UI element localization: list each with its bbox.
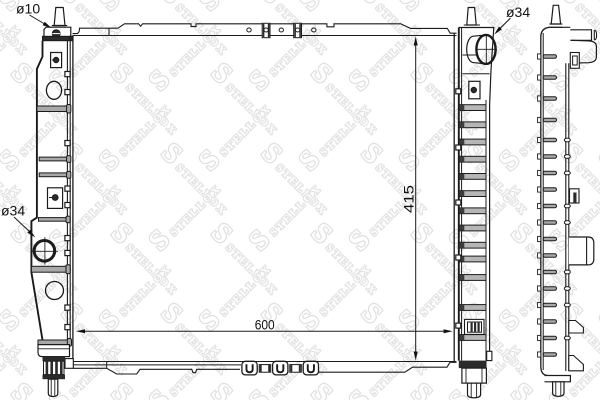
svg-text:ø34: ø34 <box>506 4 530 20</box>
svg-text:ø10: ø10 <box>16 1 40 17</box>
svg-text:600: 600 <box>255 316 275 332</box>
svg-text:ø34: ø34 <box>1 203 25 219</box>
svg-text:415: 415 <box>401 185 417 213</box>
